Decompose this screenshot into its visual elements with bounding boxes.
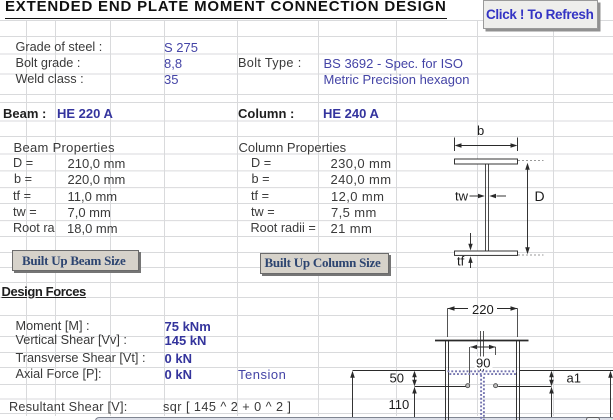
svg-text:110: 110 (389, 397, 410, 412)
svg-text:220: 220 (472, 302, 494, 317)
svg-text:tf: tf (457, 254, 465, 269)
svg-text:D: D (535, 188, 545, 204)
svg-text:a1: a1 (567, 371, 581, 386)
svg-text:50: 50 (390, 371, 404, 386)
svg-text:tw: tw (455, 189, 469, 204)
svg-text:90: 90 (476, 356, 490, 371)
svg-text:b: b (477, 123, 484, 138)
